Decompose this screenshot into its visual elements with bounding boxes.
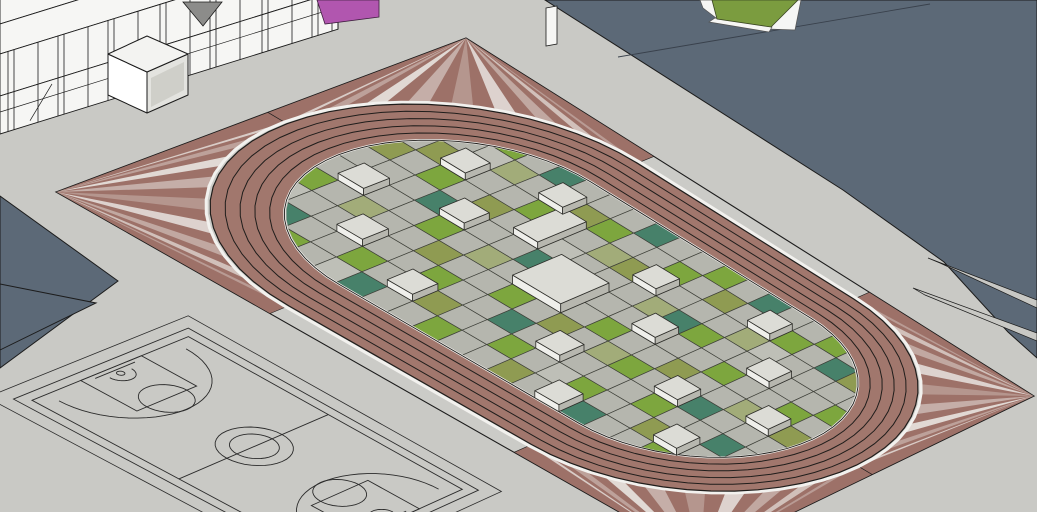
- wall-sliver: [546, 6, 557, 46]
- viewport-canvas[interactable]: [0, 0, 1037, 512]
- viewport[interactable]: [0, 0, 1037, 512]
